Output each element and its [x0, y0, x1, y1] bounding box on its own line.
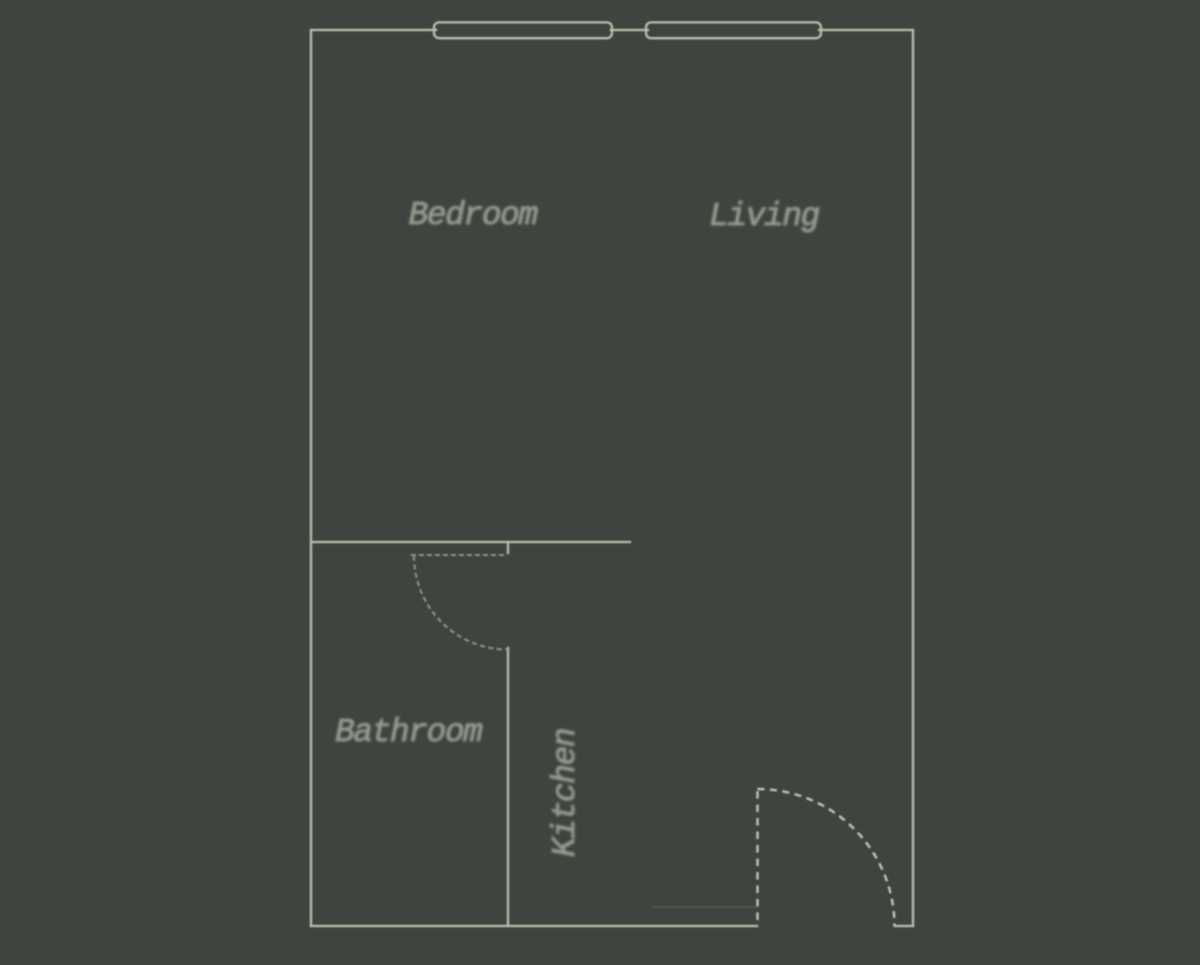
svg-text:Bathroom: Bathroom — [335, 714, 483, 751]
svg-text:Bedroom: Bedroom — [409, 197, 539, 234]
svg-text:Living: Living — [709, 198, 820, 235]
svg-text:Kitchen: Kitchen — [547, 729, 584, 857]
